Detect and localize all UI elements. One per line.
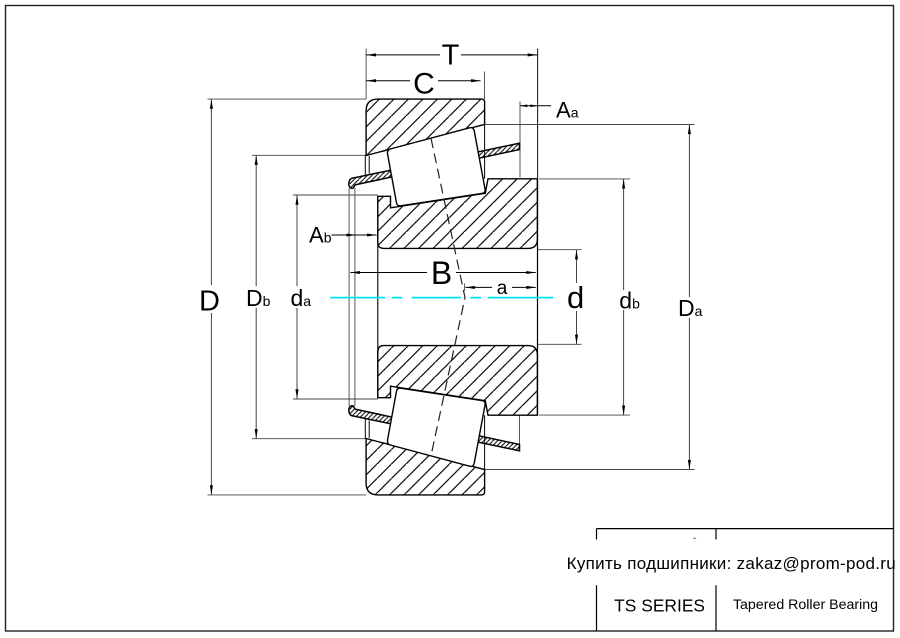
svg-text:Купить подшипники: zakaz@prom-: Купить подшипники: zakaz@prom-pod.ru bbox=[567, 554, 896, 573]
svg-text:TS SERIES: TS SERIES bbox=[614, 595, 705, 615]
svg-text:B: B bbox=[431, 255, 452, 291]
svg-text:T: T bbox=[442, 40, 460, 72]
svg-text:a: a bbox=[497, 278, 508, 299]
svg-text:d: d bbox=[567, 280, 584, 315]
svg-text:Tapered Roller Bearing: Tapered Roller Bearing bbox=[733, 597, 878, 613]
svg-text:C: C bbox=[413, 67, 435, 100]
svg-text:D: D bbox=[199, 285, 220, 317]
